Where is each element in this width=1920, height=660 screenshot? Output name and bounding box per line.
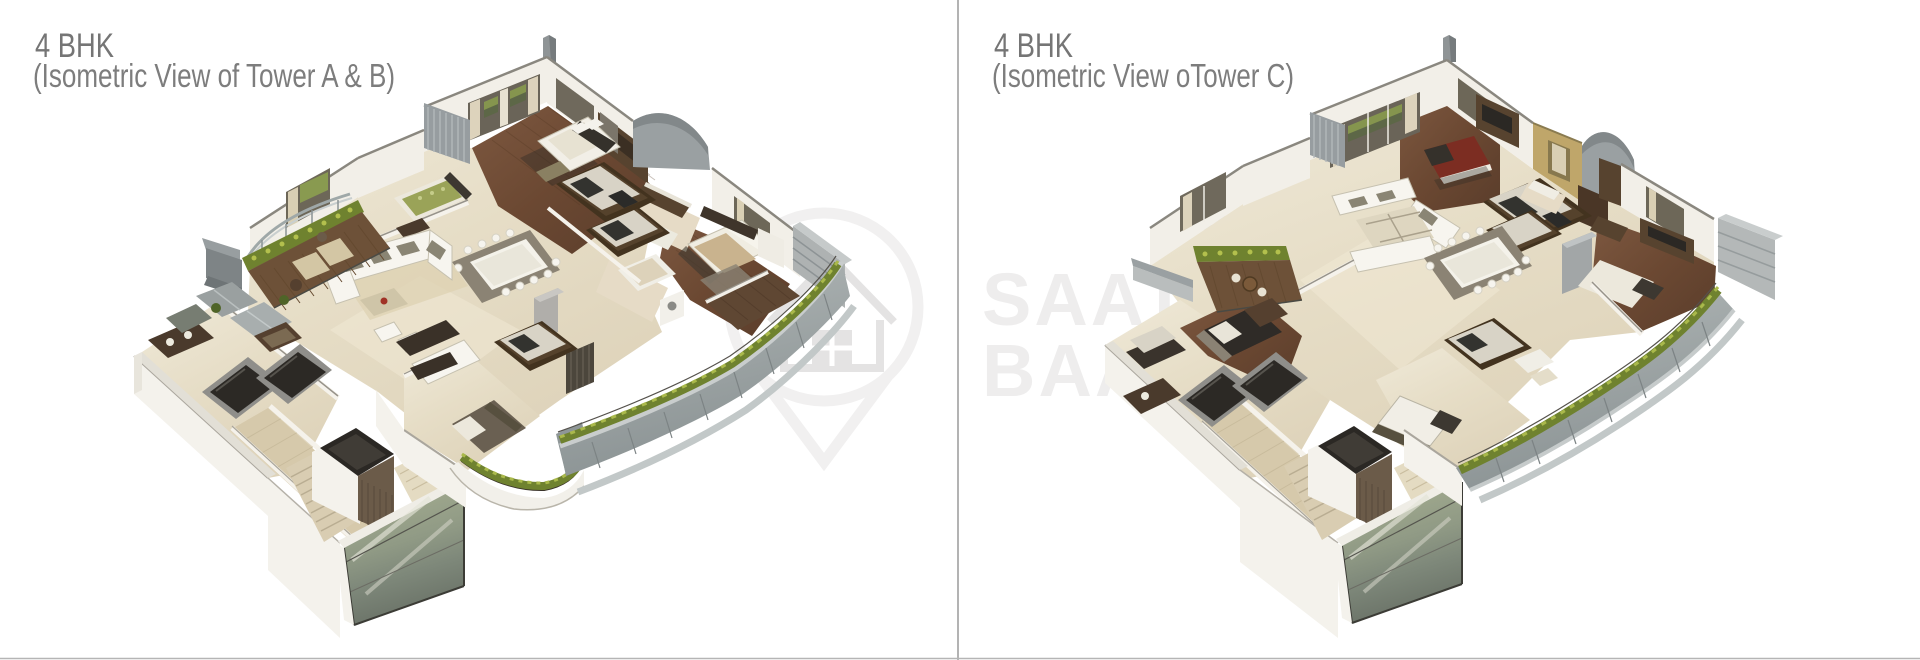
svg-text:(Isometric View oTower C): (Isometric View oTower C) bbox=[992, 57, 1294, 94]
svg-text:(Isometric View of Tower A & B: (Isometric View of Tower A & B) bbox=[33, 57, 395, 94]
